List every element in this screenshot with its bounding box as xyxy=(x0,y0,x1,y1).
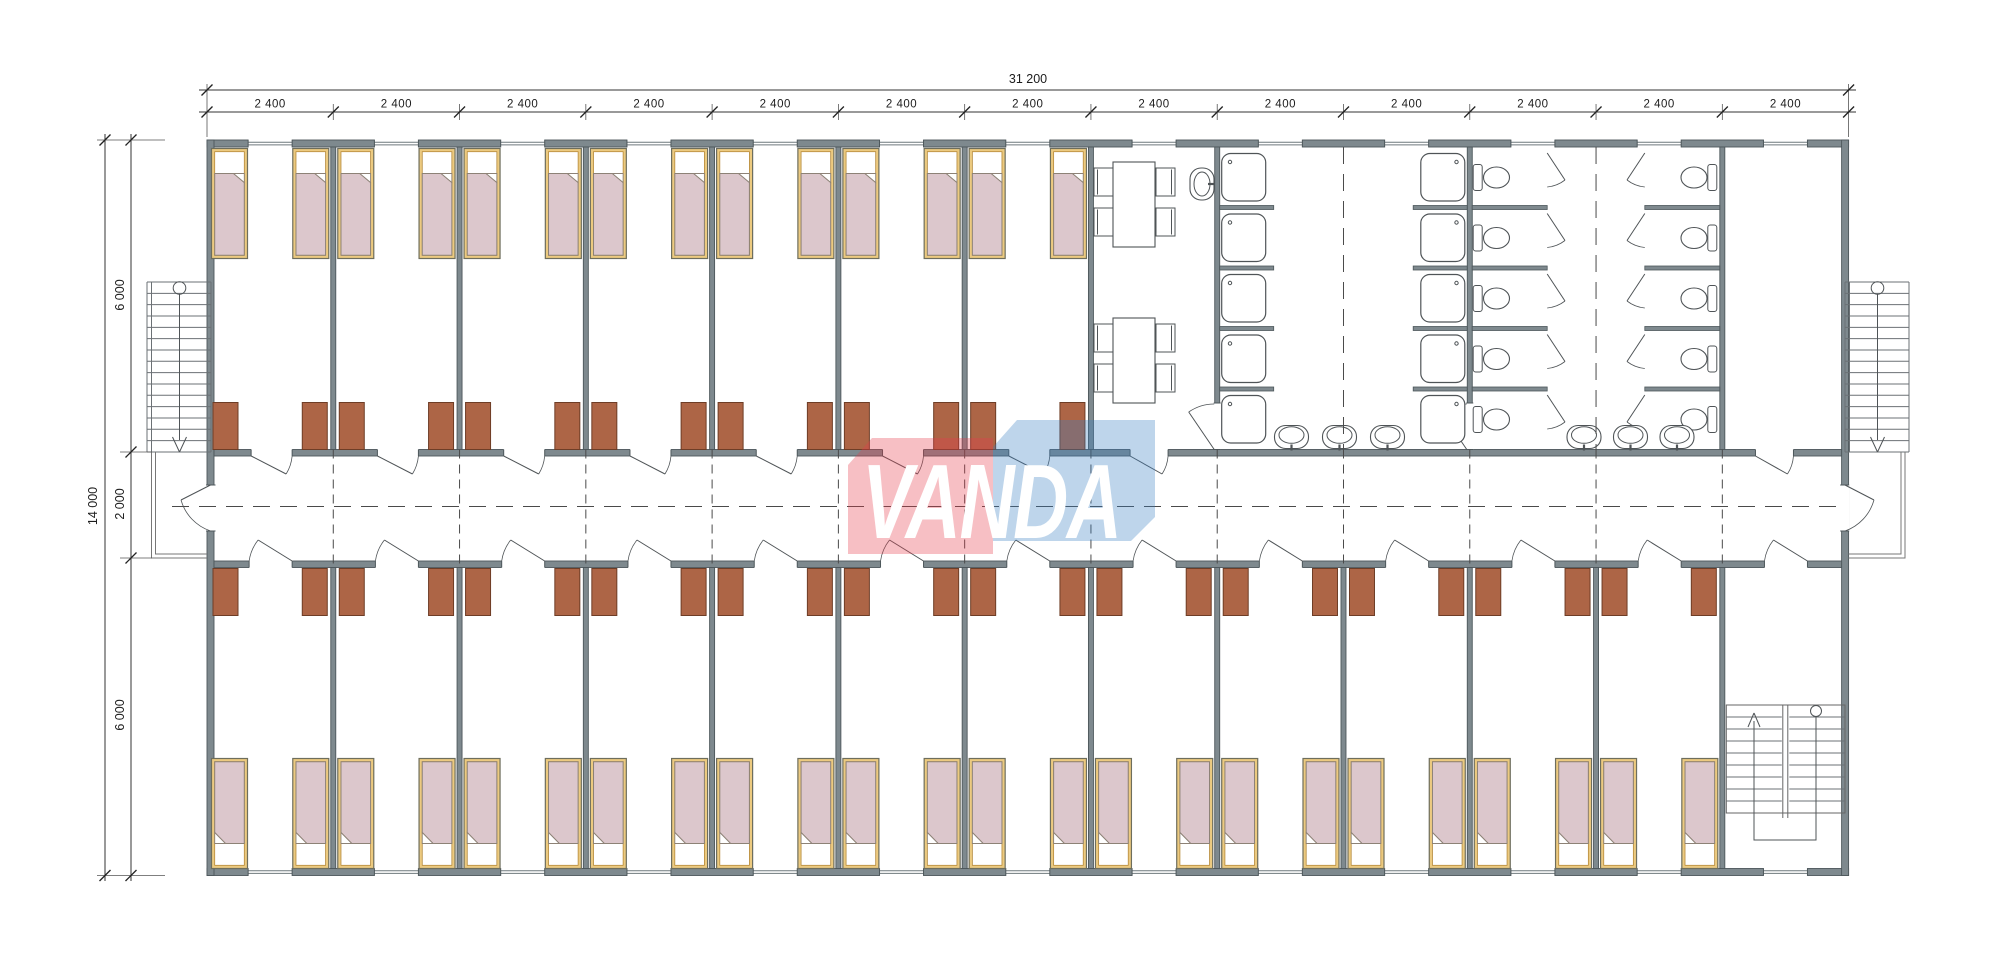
window-punch xyxy=(1637,868,1681,877)
dimension-bay-label: 2 400 xyxy=(1265,99,1296,111)
door-swing-arc xyxy=(1259,540,1268,561)
stair-landing xyxy=(1849,452,1905,558)
toilet-tank xyxy=(1708,165,1717,191)
chair xyxy=(1156,168,1175,196)
bed-mattress xyxy=(422,762,452,844)
toilet-tank xyxy=(1708,225,1717,251)
bed-mattress xyxy=(1099,762,1129,844)
bed-mattress xyxy=(801,174,831,256)
door-punch xyxy=(881,560,924,569)
door-punch xyxy=(1386,560,1429,569)
partition-wall-top xyxy=(1720,147,1725,450)
door-punch xyxy=(504,449,545,458)
stall-partition xyxy=(1413,206,1467,210)
door-leaf xyxy=(1845,485,1874,500)
bed-mattress xyxy=(1432,762,1462,844)
wardrobe xyxy=(807,403,832,450)
door-punch xyxy=(377,449,418,458)
dimension-bay-label: 2 400 xyxy=(633,99,664,111)
bed-mattress xyxy=(1351,762,1381,844)
door-leaf xyxy=(1773,540,1807,561)
door-punch xyxy=(1638,560,1681,569)
stair-arrow xyxy=(180,437,187,452)
bed-mattress xyxy=(215,174,245,256)
window-punch xyxy=(1511,868,1555,877)
door-swing-arc xyxy=(539,456,545,474)
toilet-bowl xyxy=(1681,167,1707,188)
door-leaf xyxy=(763,540,797,561)
dining-table xyxy=(1113,318,1155,403)
stall-door-arc xyxy=(1627,301,1645,308)
partition-wall-top xyxy=(836,147,841,450)
door-leaf xyxy=(1189,412,1215,450)
toilet-bowl xyxy=(1484,349,1510,370)
window-punch xyxy=(374,868,418,877)
door-leaf xyxy=(504,456,539,474)
bed-mattress xyxy=(341,762,371,844)
stair-landing xyxy=(1849,452,1901,554)
wardrobe xyxy=(1476,569,1501,616)
toilet-bowl xyxy=(1484,409,1510,430)
toilet-tank xyxy=(1708,286,1717,312)
door-swing-arc xyxy=(1189,404,1215,412)
stair-landing xyxy=(156,452,208,554)
partition-wall-bottom xyxy=(583,568,588,869)
bed-mattress xyxy=(675,762,705,844)
window-punch xyxy=(753,139,797,148)
stair-start-circle xyxy=(1871,282,1884,295)
partition-wall-bottom xyxy=(1720,568,1725,869)
window-punch xyxy=(1637,139,1681,148)
stall-partition xyxy=(1413,266,1467,270)
stall-door-leaf xyxy=(1627,214,1645,241)
partition-wall-bottom xyxy=(331,568,336,869)
door-swing-arc xyxy=(1386,540,1395,561)
door-leaf xyxy=(258,540,292,561)
wardrobe xyxy=(681,403,706,450)
bed-mattress xyxy=(675,174,705,256)
bed-mattress xyxy=(549,174,579,256)
door-leaf xyxy=(637,540,671,561)
wardrobe xyxy=(1439,569,1464,616)
wardrobe xyxy=(592,569,617,616)
door-swing-arc xyxy=(791,456,797,474)
door-punch xyxy=(630,449,671,458)
stall-door-arc xyxy=(1547,241,1565,248)
dimension-total-width-label: 31 200 xyxy=(978,72,1078,86)
vanda-logo-text: VANDA xyxy=(862,452,1121,552)
dimension-bay-label: 2 400 xyxy=(886,99,917,111)
bed-mattress xyxy=(1054,762,1084,844)
stall-partition xyxy=(1220,206,1274,210)
toilet-tank xyxy=(1708,407,1717,433)
door-leaf xyxy=(511,540,545,561)
bed-mattress xyxy=(1054,174,1084,256)
wardrobe xyxy=(1060,569,1085,616)
window-punch xyxy=(1511,139,1555,148)
dimension-bay-label: 2 400 xyxy=(254,99,285,111)
stall-door-arc xyxy=(1627,362,1645,369)
door-swing-arc xyxy=(1764,540,1773,561)
chair xyxy=(1094,168,1113,196)
wardrobe xyxy=(1602,569,1627,616)
wardrobe xyxy=(1223,569,1248,616)
toilet-tank xyxy=(1473,286,1482,312)
window-punch xyxy=(374,139,418,148)
door-punch xyxy=(628,560,671,569)
partition-wall-top xyxy=(1088,147,1093,450)
door-swing-arc xyxy=(1787,456,1793,474)
bed-mattress xyxy=(296,762,326,844)
window-punch xyxy=(753,868,797,877)
door-punch xyxy=(1259,560,1302,569)
door-swing-arc xyxy=(1512,540,1521,561)
partition-wall-bottom xyxy=(1088,568,1093,869)
stall-door-arc xyxy=(1547,362,1565,369)
wardrobe xyxy=(213,569,238,616)
stair-arrow xyxy=(1871,437,1878,452)
bed-mattress xyxy=(467,174,497,256)
wardrobe xyxy=(681,569,706,616)
bed-mattress xyxy=(801,762,831,844)
door-swing-arc xyxy=(412,456,418,474)
chair xyxy=(1094,364,1113,392)
stall-door-leaf xyxy=(1547,274,1565,301)
door-swing-arc xyxy=(1638,540,1647,561)
stall-partition xyxy=(1220,327,1274,331)
stall-partition xyxy=(1220,266,1274,270)
door-swing-arc xyxy=(754,540,763,561)
wardrobe xyxy=(302,569,327,616)
stall-door-arc xyxy=(1627,180,1645,187)
toilet-bowl xyxy=(1681,349,1707,370)
door-punch xyxy=(754,560,797,569)
chair xyxy=(1094,324,1113,352)
door-leaf xyxy=(1268,540,1302,561)
bed-mattress xyxy=(927,174,957,256)
bed-mattress xyxy=(972,762,1002,844)
door-punch xyxy=(1133,560,1176,569)
wardrobe xyxy=(339,569,364,616)
stall-partition xyxy=(1645,387,1720,391)
bed-mattress xyxy=(1225,762,1255,844)
dimension-bay-label: 2 400 xyxy=(1391,99,1422,111)
toilet-tank xyxy=(1708,346,1717,372)
stall-partition xyxy=(1220,387,1274,391)
wardrobe xyxy=(429,569,454,616)
stall-partition xyxy=(1413,327,1467,331)
window-punch xyxy=(248,868,292,877)
bed-mattress xyxy=(1685,762,1715,844)
partition-wall-bottom xyxy=(836,568,841,869)
door-punch xyxy=(1764,560,1807,569)
chair xyxy=(1156,208,1175,236)
partition-wall-bottom xyxy=(1341,568,1346,869)
wardrobe xyxy=(1312,569,1337,616)
window-punch xyxy=(1132,868,1176,877)
wardrobe xyxy=(555,569,580,616)
stair-direction-line xyxy=(1754,717,1816,841)
bed-mattress xyxy=(1306,762,1336,844)
door-punch xyxy=(1214,403,1221,450)
bed-mattress xyxy=(1604,762,1634,844)
window-punch xyxy=(1132,139,1176,148)
toilet-bowl xyxy=(1681,228,1707,249)
door-swing-arc xyxy=(1162,456,1168,474)
wardrobe xyxy=(555,403,580,450)
window-punch xyxy=(1763,139,1807,148)
dimension-total-height-label: 14 000 xyxy=(86,471,100,541)
door-swing-arc xyxy=(375,540,384,561)
bed-mattress xyxy=(594,174,624,256)
door-swing-arc xyxy=(1133,540,1142,561)
stall-door-leaf xyxy=(1627,335,1645,362)
door-leaf xyxy=(384,540,418,561)
bed-mattress xyxy=(846,762,876,844)
wardrobe xyxy=(592,403,617,450)
stall-door-arc xyxy=(1627,241,1645,248)
wardrobe xyxy=(466,403,491,450)
partition-wall-top xyxy=(457,147,462,450)
wardrobe xyxy=(934,569,959,616)
stall-partition xyxy=(1645,327,1720,331)
window-punch xyxy=(1258,868,1302,877)
stall-door-leaf xyxy=(1627,395,1645,422)
partition-wall-bottom xyxy=(1594,568,1599,869)
dimension-left-segment-3: 6 000 xyxy=(113,680,127,750)
door-punch xyxy=(1755,449,1793,458)
door-leaf xyxy=(377,456,412,474)
window-punch xyxy=(1006,868,1050,877)
toilet-bowl xyxy=(1484,228,1510,249)
window-punch xyxy=(627,139,671,148)
window-punch xyxy=(1258,139,1302,148)
door-leaf xyxy=(1755,456,1787,474)
wardrobe xyxy=(1691,569,1716,616)
stall-door-arc xyxy=(1547,180,1565,187)
wardrobe xyxy=(718,569,743,616)
door-punch xyxy=(756,449,797,458)
stair-arrow xyxy=(1878,437,1885,452)
door-leaf xyxy=(251,456,286,474)
partition-wall-top xyxy=(962,147,967,450)
stair-arrow xyxy=(1754,713,1760,727)
wardrobe xyxy=(1186,569,1211,616)
window-punch xyxy=(248,139,292,148)
window-punch xyxy=(1385,139,1429,148)
window-punch xyxy=(501,139,545,148)
partition-wall-bottom xyxy=(710,568,715,869)
partition-wall-bottom xyxy=(962,568,967,869)
stair-arrow xyxy=(1748,713,1754,727)
bed-mattress xyxy=(341,174,371,256)
bed-mattress xyxy=(1180,762,1210,844)
window-punch xyxy=(1763,868,1807,877)
stair-arrow xyxy=(173,437,180,452)
bed-mattress xyxy=(720,762,750,844)
door-leaf xyxy=(1521,540,1555,561)
wardrobe xyxy=(1349,569,1374,616)
toilet-bowl xyxy=(1484,288,1510,309)
dimension-bay-label: 2 400 xyxy=(1644,99,1675,111)
partition-wall-top xyxy=(331,147,336,450)
wardrobe xyxy=(339,403,364,450)
dimension-left-segment-2: 2 000 xyxy=(113,469,127,539)
bed-mattress xyxy=(972,174,1002,256)
door-punch xyxy=(251,449,292,458)
internal-staircase xyxy=(1726,705,1845,813)
wardrobe xyxy=(971,569,996,616)
wardrobe xyxy=(302,403,327,450)
window-punch xyxy=(880,868,924,877)
bed-mattress xyxy=(1559,762,1589,844)
window-punch xyxy=(627,868,671,877)
bed-mattress xyxy=(215,762,245,844)
dimension-left-segment-1: 6 000 xyxy=(113,260,127,330)
bed-mattress xyxy=(467,762,497,844)
partition-wall-bottom xyxy=(457,568,462,869)
wash-basin-bowl xyxy=(1375,427,1400,444)
door-leaf xyxy=(756,456,791,474)
stair-start-circle xyxy=(1811,706,1822,717)
stall-partition xyxy=(1472,206,1547,210)
door-swing-arc xyxy=(665,456,671,474)
wardrobe xyxy=(718,403,743,450)
stall-door-leaf xyxy=(1547,153,1565,180)
wash-basin-bowl xyxy=(1327,427,1352,444)
bed-mattress xyxy=(720,174,750,256)
door-punch xyxy=(1007,560,1050,569)
wash-basin-bowl xyxy=(1572,427,1597,444)
dimension-bay-label: 2 400 xyxy=(760,99,791,111)
wash-basin-bowl xyxy=(1194,172,1210,196)
bed-mattress xyxy=(296,174,326,256)
wash-basin-bowl xyxy=(1279,427,1304,444)
window-punch xyxy=(1385,868,1429,877)
stall-door-leaf xyxy=(1547,214,1565,241)
wardrobe xyxy=(466,569,491,616)
partition-wall-top xyxy=(710,147,715,450)
stall-door-leaf xyxy=(1547,335,1565,362)
wardrobe xyxy=(429,403,454,450)
bed-mattress xyxy=(846,174,876,256)
dimension-bay-label: 2 400 xyxy=(507,99,538,111)
bed-mattress xyxy=(594,762,624,844)
toilet-tank xyxy=(1473,407,1482,433)
stall-door-arc xyxy=(1547,301,1565,308)
chair xyxy=(1156,364,1175,392)
chair xyxy=(1094,208,1113,236)
stall-door-arc xyxy=(1547,422,1565,429)
bed-mattress xyxy=(422,174,452,256)
dimension-bay-label: 2 400 xyxy=(1517,99,1548,111)
stall-partition xyxy=(1645,266,1720,270)
door-punch xyxy=(1840,485,1849,531)
wardrobe xyxy=(1097,569,1122,616)
stall-door-leaf xyxy=(1627,274,1645,301)
bed-mattress xyxy=(1477,762,1507,844)
partition-wall-bottom xyxy=(1215,568,1220,869)
dimension-bay-label: 2 400 xyxy=(381,99,412,111)
toilet-bowl xyxy=(1484,167,1510,188)
wash-basin-bowl xyxy=(1665,427,1690,444)
door-swing-arc xyxy=(628,540,637,561)
door-punch xyxy=(249,560,292,569)
stall-partition xyxy=(1472,387,1547,391)
wardrobe xyxy=(213,403,238,450)
door-punch xyxy=(1512,560,1555,569)
stall-partition xyxy=(1472,266,1547,270)
door-punch xyxy=(502,560,545,569)
door-swing-arc xyxy=(1845,500,1874,531)
bed-mattress xyxy=(549,762,579,844)
stall-door-leaf xyxy=(1547,395,1565,422)
door-swing-arc xyxy=(286,456,292,474)
wardrobe xyxy=(807,569,832,616)
stall-partition xyxy=(1472,327,1547,331)
toilet-tank xyxy=(1473,165,1482,191)
dimension-bay-label: 2 400 xyxy=(1138,99,1169,111)
wardrobe xyxy=(844,569,869,616)
door-swing-arc xyxy=(502,540,511,561)
chair xyxy=(1156,324,1175,352)
window-punch xyxy=(1006,139,1050,148)
window-punch xyxy=(501,868,545,877)
dimension-bay-label: 2 400 xyxy=(1770,99,1801,111)
partition-wall-bottom xyxy=(1467,568,1472,869)
stall-partition xyxy=(1645,206,1720,210)
door-punch xyxy=(1466,403,1473,450)
door-swing-arc xyxy=(249,540,258,561)
door-leaf xyxy=(630,456,665,474)
stall-partition xyxy=(1413,387,1467,391)
window-punch xyxy=(880,139,924,148)
stall-door-leaf xyxy=(1627,153,1645,180)
door-leaf xyxy=(1647,540,1681,561)
stair-start-circle xyxy=(173,282,186,295)
dining-table xyxy=(1113,162,1155,247)
toilet-tank xyxy=(1473,225,1482,251)
door-punch xyxy=(375,560,418,569)
partition-wall-top xyxy=(583,147,588,450)
door-leaf xyxy=(1142,540,1176,561)
toilet-tank xyxy=(1473,346,1482,372)
stair-landing xyxy=(152,452,208,558)
floor-plan: 2 4002 4002 4002 4002 4002 4002 4002 400… xyxy=(0,0,2000,977)
bed-mattress xyxy=(927,762,957,844)
wash-basin-bowl xyxy=(1618,427,1643,444)
door-leaf xyxy=(1395,540,1429,561)
wardrobe xyxy=(1565,569,1590,616)
dimension-bay-label: 2 400 xyxy=(1012,99,1043,111)
toilet-bowl xyxy=(1681,288,1707,309)
door-punch xyxy=(206,485,215,531)
